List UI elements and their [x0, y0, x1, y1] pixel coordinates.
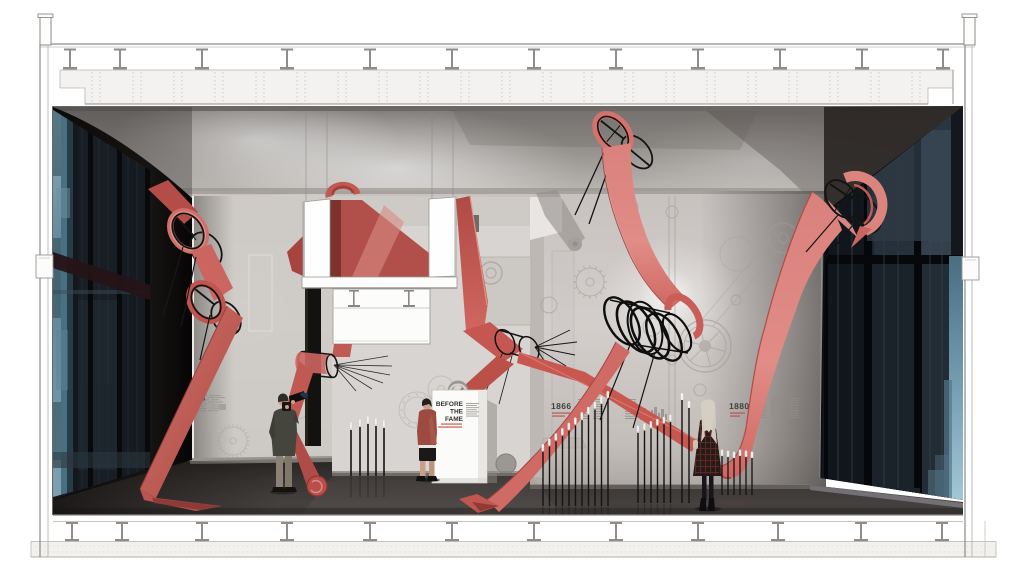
svg-text:1880: 1880: [729, 401, 750, 411]
svg-text:FAME: FAME: [445, 416, 464, 423]
svg-text:THE: THE: [450, 409, 464, 416]
svg-text:BEFORE: BEFORE: [436, 401, 464, 408]
svg-text:1866: 1866: [551, 401, 572, 411]
